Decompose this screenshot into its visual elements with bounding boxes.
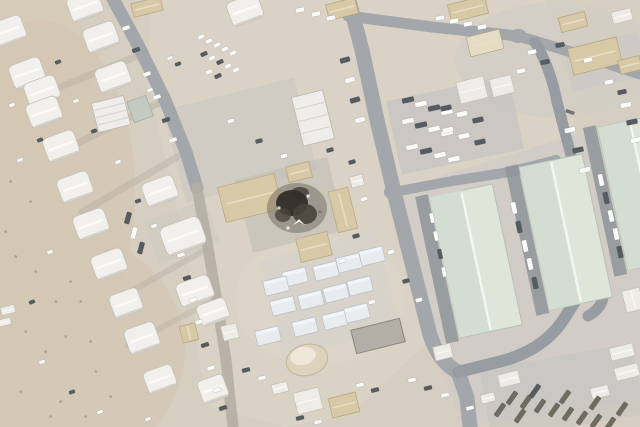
terrain-feature [307, 195, 310, 198]
terrain-feature [278, 207, 281, 210]
satellite-image [0, 0, 640, 427]
terrain-feature [384, 184, 404, 200]
satellite-photo [0, 0, 640, 427]
terrain-feature [318, 211, 322, 214]
terrain-feature [275, 208, 291, 222]
terrain-feature [287, 227, 290, 230]
burn-scar [267, 183, 327, 233]
terrain-feature [509, 29, 527, 43]
terrain-feature [291, 187, 309, 199]
terrain-feature [293, 204, 317, 224]
